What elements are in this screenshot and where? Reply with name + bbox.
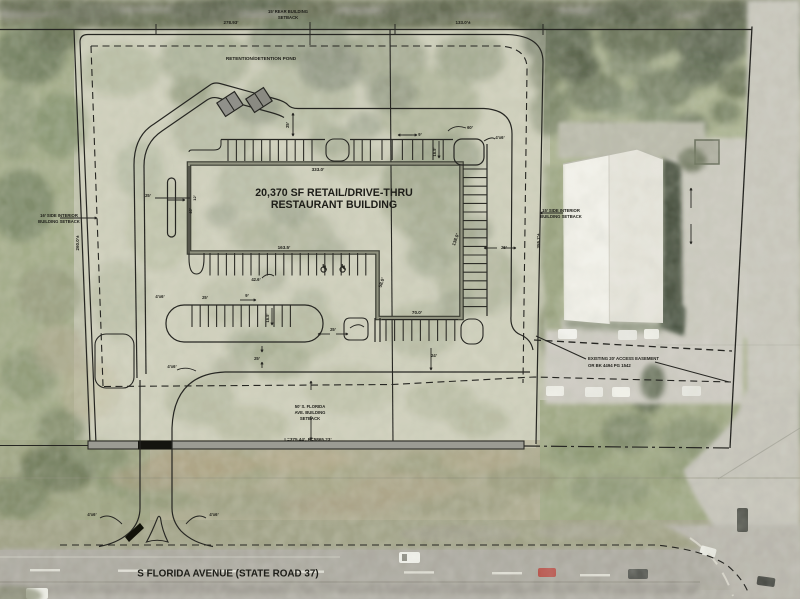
svg-text:25’: 25’ xyxy=(145,193,151,198)
svg-text:18.5’: 18.5’ xyxy=(432,148,437,157)
svg-text:278.93’: 278.93’ xyxy=(223,20,238,25)
svg-text:355.7’±: 355.7’± xyxy=(536,233,541,249)
svg-text:4’x6’: 4’x6’ xyxy=(495,135,504,140)
svg-text:AVE. BUILDING: AVE. BUILDING xyxy=(295,410,326,415)
svg-text:12’: 12’ xyxy=(192,195,197,201)
svg-text:25’: 25’ xyxy=(202,295,208,300)
svg-text:4’x6’: 4’x6’ xyxy=(209,512,218,517)
svg-text:50’ S. FLORIDA: 50’ S. FLORIDA xyxy=(295,404,325,409)
svg-text:40’: 40’ xyxy=(188,208,193,214)
svg-text:26’: 26’ xyxy=(501,245,507,250)
svg-text:4’x6’: 4’x6’ xyxy=(155,294,164,299)
svg-text:25’: 25’ xyxy=(254,356,260,361)
svg-text:333.0’: 333.0’ xyxy=(312,167,325,172)
svg-text:42.6’: 42.6’ xyxy=(251,277,260,282)
svg-text:EXISTING 20’ ACCESS EASEMENT: EXISTING 20’ ACCESS EASEMENT xyxy=(588,356,659,361)
svg-text:L=375.44’, R=5865.23’: L=375.44’, R=5865.23’ xyxy=(284,437,331,442)
svg-text:BUILDING SETBACK: BUILDING SETBACK xyxy=(38,219,80,224)
svg-text:18.5’: 18.5’ xyxy=(265,314,270,323)
svg-text:260.0’±: 260.0’± xyxy=(75,235,80,251)
svg-text:15’ REAR BUILDING: 15’ REAR BUILDING xyxy=(268,9,308,14)
svg-text:25’: 25’ xyxy=(285,122,290,128)
svg-text:15’ SIDE INTERIOR: 15’ SIDE INTERIOR xyxy=(542,208,580,213)
svg-text:9’: 9’ xyxy=(245,293,249,298)
svg-text:20,370 SF RETAIL/DRIVE-THRU: 20,370 SF RETAIL/DRIVE-THRU xyxy=(255,187,413,199)
svg-text:25’: 25’ xyxy=(330,327,336,332)
svg-text:RESTAURANT BUILDING: RESTAURANT BUILDING xyxy=(271,199,397,211)
svg-text:9’: 9’ xyxy=(418,132,422,137)
svg-text:4’x6’: 4’x6’ xyxy=(87,512,96,517)
svg-text:133.0’±: 133.0’± xyxy=(456,20,472,25)
svg-text:163.5’: 163.5’ xyxy=(278,245,291,250)
svg-text:S FLORIDA AVENUE (STATE ROAD 3: S FLORIDA AVENUE (STATE ROAD 37) xyxy=(137,569,318,580)
svg-text:70.0’: 70.0’ xyxy=(412,310,422,315)
svg-text:4’x6’: 4’x6’ xyxy=(167,364,176,369)
svg-text:60’: 60’ xyxy=(467,125,473,130)
svg-text:RETENTION/DETENTION POND: RETENTION/DETENTION POND xyxy=(226,56,297,61)
svg-text:SETBACK: SETBACK xyxy=(300,416,320,421)
svg-text:OR BK 4494 PG 1542: OR BK 4494 PG 1542 xyxy=(588,363,631,368)
svg-text:24’: 24’ xyxy=(431,353,437,358)
svg-text:SETBACK: SETBACK xyxy=(278,15,298,20)
svg-text:BUILDING SETBACK: BUILDING SETBACK xyxy=(540,214,582,219)
svg-text:16’ SIDE INTERIOR: 16’ SIDE INTERIOR xyxy=(40,213,78,218)
